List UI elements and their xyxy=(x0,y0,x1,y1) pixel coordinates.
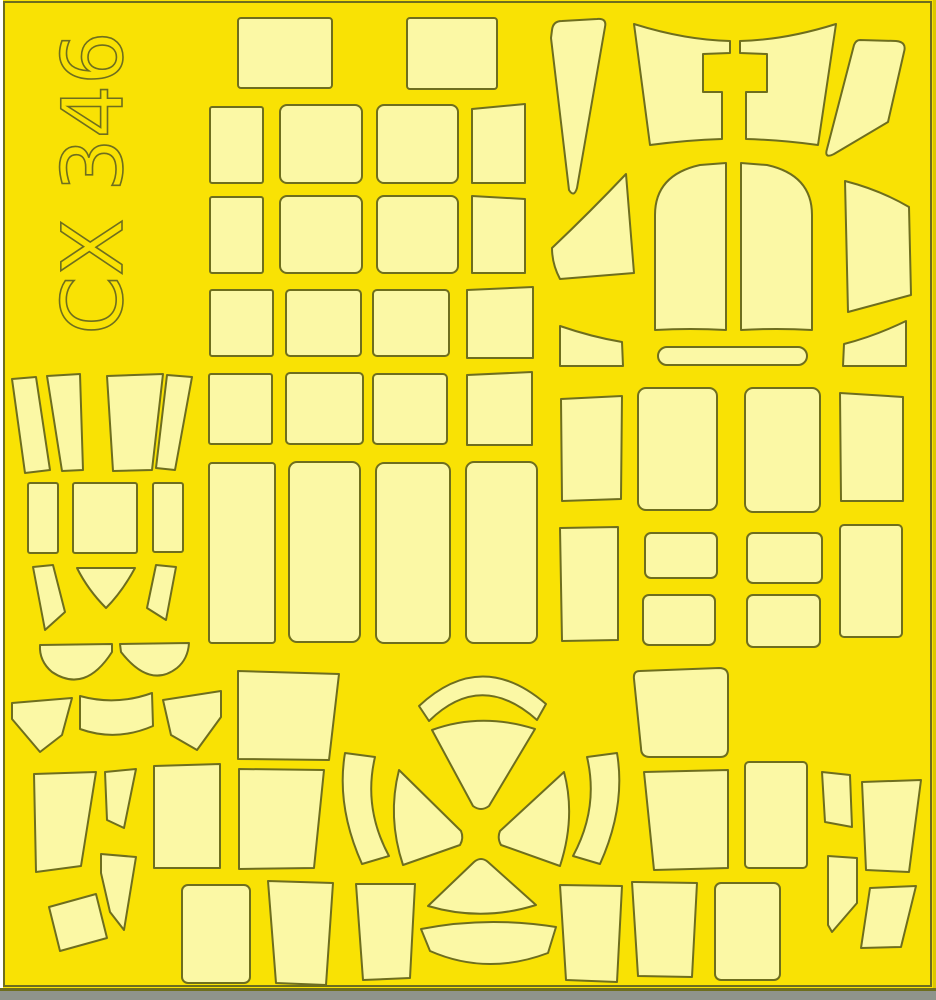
mask-grid-a4 xyxy=(472,104,525,183)
mask-canopy-wedge-left xyxy=(552,174,634,279)
mask-grid-d3 xyxy=(373,374,447,444)
mask-fan-bottom-outer xyxy=(421,922,556,964)
mask-right-g4 xyxy=(840,525,902,637)
mask-fan-sliver-left xyxy=(343,753,389,864)
mask-top-rect-1 xyxy=(238,18,332,88)
mask-grid-d1 xyxy=(209,374,272,444)
mask-corner-wedge-right xyxy=(843,321,906,366)
mask-grid-d2 xyxy=(286,373,363,444)
mask-bl-quad xyxy=(105,769,136,828)
mask-canopy-arch-right xyxy=(741,163,812,330)
mask-bl-curved-band xyxy=(80,693,153,735)
mask-right-f3 xyxy=(745,388,820,512)
mask-grid-a1 xyxy=(210,107,263,183)
mask-canopy-arch-left xyxy=(655,163,726,330)
mask-column-e4 xyxy=(466,462,537,643)
mask-grid-b4 xyxy=(472,196,525,273)
mask-bottom-trap-2 xyxy=(356,884,415,980)
mask-right-f1 xyxy=(561,396,622,501)
mask-br-flag xyxy=(828,856,857,932)
mask-grid-c2 xyxy=(286,290,361,356)
mask-right-g6 xyxy=(747,595,820,647)
mask-grid-d4 xyxy=(467,372,532,445)
mask-left-sliver-1 xyxy=(33,565,65,630)
mask-bl-kite-right xyxy=(163,691,221,750)
mask-grid-b2 xyxy=(280,196,362,273)
mask-right-f2 xyxy=(638,388,717,510)
mask-halfdisc-right xyxy=(120,643,189,676)
mask-grid-c1 xyxy=(210,290,273,356)
mask-left-sliver-2 xyxy=(147,565,176,620)
mask-grid-a2 xyxy=(280,105,362,183)
mask-right-g5 xyxy=(643,595,715,645)
mask-bl-blade xyxy=(101,854,136,930)
mask-br-big-trap xyxy=(634,668,728,757)
mask-fan-left-s2 xyxy=(47,374,83,471)
mask-br-quad xyxy=(822,772,852,827)
mask-windshield-left xyxy=(634,24,730,145)
mask-left-triangle xyxy=(77,568,135,608)
mask-br-bottom-trap xyxy=(632,882,697,977)
sheet-code-label: CX 346 xyxy=(44,31,142,334)
mask-fan-west xyxy=(394,770,462,865)
mask-canopy-blade-right xyxy=(826,40,904,156)
mask-windshield-right xyxy=(740,24,836,145)
mask-sheet: CX 346 xyxy=(0,0,936,1000)
mask-grid-c3 xyxy=(373,290,449,356)
mask-bottom-trap-1 xyxy=(268,881,333,985)
mask-bl-square xyxy=(182,885,250,983)
mask-br-trap-2 xyxy=(644,770,728,870)
mask-right-f4 xyxy=(840,393,903,501)
mask-bc-trap-2 xyxy=(239,769,324,869)
mask-column-e2 xyxy=(289,462,360,642)
mask-right-g1 xyxy=(560,527,618,641)
mask-grid-c4 xyxy=(467,287,533,358)
sheet-edge-bottom xyxy=(0,988,936,1000)
mask-grid-b1 xyxy=(210,197,263,273)
mask-canopy-wedge-right xyxy=(845,181,911,312)
mask-fan-left-s3 xyxy=(107,374,163,471)
mask-fan-top-inner xyxy=(432,721,535,809)
mask-bottom-trap-3 xyxy=(560,885,622,982)
mask-column-e1 xyxy=(209,463,275,643)
mask-column-e3 xyxy=(376,463,450,643)
mask-capsule-strip xyxy=(658,347,807,365)
mask-fan-left-s1 xyxy=(12,377,50,473)
mask-fan-bottom-inner xyxy=(428,859,536,914)
mask-bl-trapezoid xyxy=(34,772,96,872)
mask-br-rect xyxy=(745,762,807,868)
mask-fan-sliver-right xyxy=(573,753,619,864)
mask-bl-kite-left xyxy=(12,698,72,752)
mask-bl-tall-rect xyxy=(154,764,220,868)
mask-br-bottom-rect xyxy=(715,883,780,980)
mask-right-g3 xyxy=(747,533,822,583)
mask-br-parallelogram xyxy=(861,886,916,948)
mask-left-rect-1 xyxy=(28,483,58,553)
mask-bl-parallelogram xyxy=(49,894,107,951)
mask-br-trap-right xyxy=(862,780,921,872)
mask-canopy-blade-left xyxy=(551,19,605,194)
mask-bc-trap-1 xyxy=(238,671,339,760)
mask-grid-b3 xyxy=(377,196,458,273)
mask-left-rect-2 xyxy=(153,483,183,552)
mask-fan-east xyxy=(499,772,569,866)
mask-top-rect-2 xyxy=(407,18,497,89)
mask-halfdisc-left xyxy=(40,644,112,680)
sheet-edge-left xyxy=(0,0,3,1000)
mask-left-square xyxy=(73,483,137,553)
mask-right-g2 xyxy=(645,533,717,578)
mask-corner-wedge-left xyxy=(560,326,623,366)
mask-grid-a3 xyxy=(377,105,458,183)
mask-fan-top-outer xyxy=(419,676,546,721)
